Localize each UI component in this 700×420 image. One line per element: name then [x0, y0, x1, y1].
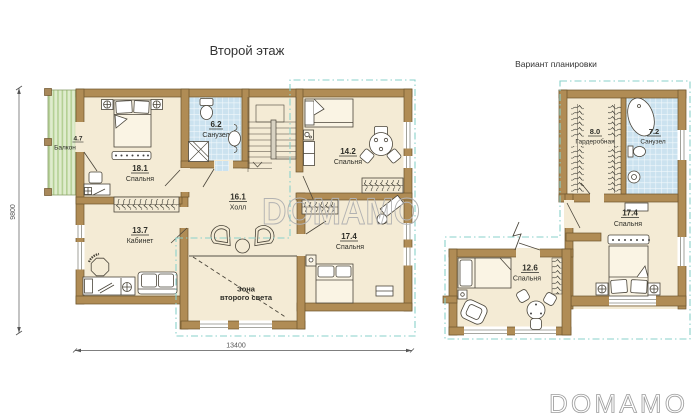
svg-text:Вариант планировки: Вариант планировки — [515, 59, 597, 69]
svg-text:17.4: 17.4 — [622, 209, 638, 218]
svg-text:Спальня: Спальня — [336, 244, 364, 251]
svg-text:13.7: 13.7 — [132, 226, 148, 235]
svg-text:Холл: Холл — [230, 205, 247, 212]
svg-text:Спальня: Спальня — [513, 276, 541, 283]
svg-text:Санузел: Санузел — [202, 132, 229, 139]
svg-text:Балкон: Балкон — [54, 145, 76, 152]
svg-text:18.1: 18.1 — [132, 164, 148, 173]
svg-text:второго света: второго света — [220, 293, 273, 302]
svg-text:13400: 13400 — [226, 343, 246, 350]
svg-text:Спальня: Спальня — [126, 176, 154, 183]
svg-text:14.2: 14.2 — [340, 147, 356, 156]
svg-text:Спальня: Спальня — [614, 221, 642, 228]
svg-text:17.4: 17.4 — [341, 232, 357, 241]
svg-text:Гардеробная: Гардеробная — [575, 138, 615, 146]
svg-text:7.2: 7.2 — [649, 127, 659, 136]
svg-text:Спальня: Спальня — [334, 159, 362, 166]
svg-text:16.1: 16.1 — [230, 193, 246, 202]
svg-text:12.6: 12.6 — [522, 264, 538, 273]
svg-text:6.2: 6.2 — [210, 120, 222, 129]
svg-text:4.7: 4.7 — [73, 136, 82, 143]
svg-text:DOMAMO: DOMAMO — [262, 190, 420, 232]
svg-text:8.0: 8.0 — [590, 127, 600, 136]
svg-text:9800: 9800 — [10, 204, 17, 220]
svg-text:Кабинет: Кабинет — [127, 237, 154, 245]
svg-text:Второй этаж: Второй этаж — [210, 43, 285, 58]
svg-text:Санузел: Санузел — [640, 139, 666, 146]
